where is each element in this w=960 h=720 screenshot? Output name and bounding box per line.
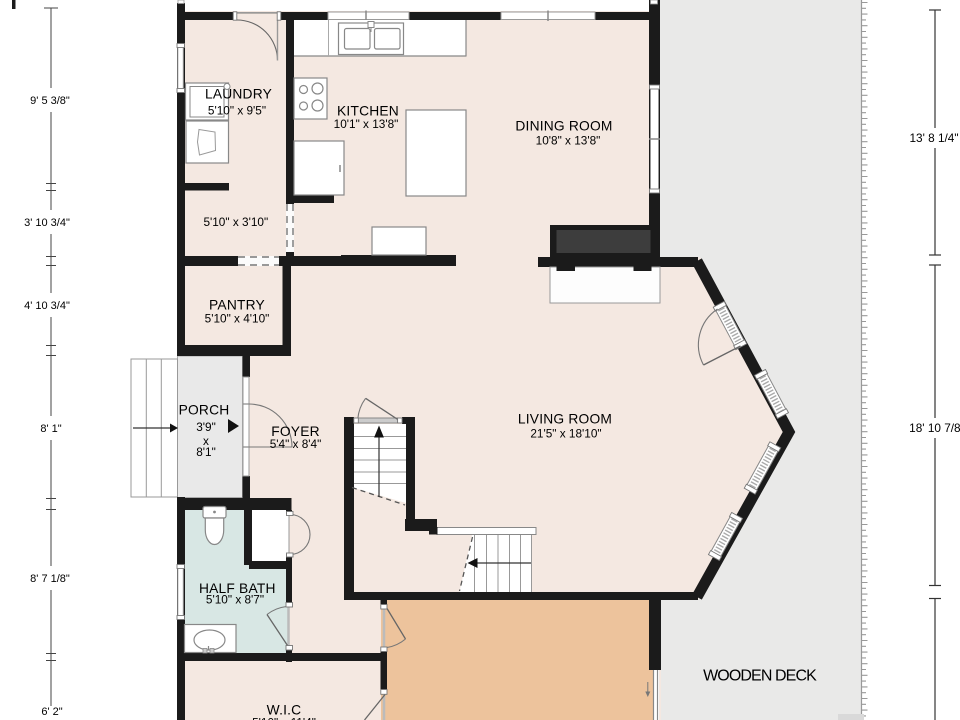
svg-text:5'10" x 9'5": 5'10" x 9'5"	[208, 104, 266, 118]
svg-text:4' 10 3/4": 4' 10 3/4"	[24, 300, 70, 312]
svg-text:5'10" x 4'10": 5'10" x 4'10"	[205, 312, 270, 326]
svg-text:LIVING ROOM: LIVING ROOM	[518, 412, 612, 427]
svg-text:5'10" x 8'7": 5'10" x 8'7"	[206, 593, 264, 607]
svg-text:9' 5 3/8": 9' 5 3/8"	[30, 95, 70, 107]
svg-text:3'9": 3'9"	[196, 420, 216, 434]
svg-text:8' 1": 8' 1"	[40, 423, 61, 435]
svg-text:5'10" x 3'10": 5'10" x 3'10"	[203, 215, 268, 229]
svg-text:WOODEN DECK: WOODEN DECK	[703, 668, 817, 685]
svg-text:6' 2": 6' 2"	[41, 706, 62, 718]
svg-text:LAUNDRY: LAUNDRY	[205, 87, 272, 102]
svg-text:10'1" x 13'8": 10'1" x 13'8"	[334, 117, 399, 131]
svg-text:8'1": 8'1"	[196, 445, 216, 459]
svg-text:21'5" x 18'10": 21'5" x 18'10"	[530, 426, 601, 440]
svg-text:PANTRY: PANTRY	[209, 298, 265, 313]
svg-text:8' 7 1/8": 8' 7 1/8"	[30, 573, 70, 585]
svg-text:DINING ROOM: DINING ROOM	[515, 119, 612, 134]
svg-text:3' 10 3/4": 3' 10 3/4"	[24, 217, 70, 229]
svg-text:PORCH: PORCH	[179, 403, 230, 418]
svg-text:5'4" x 8'4": 5'4" x 8'4"	[270, 437, 322, 451]
svg-text:13' 8 1/4": 13' 8 1/4"	[909, 131, 958, 145]
svg-text:18' 10 7/8": 18' 10 7/8"	[909, 421, 960, 435]
svg-text:10'8" x 13'8": 10'8" x 13'8"	[536, 134, 601, 148]
svg-text:5'10" x 11'4": 5'10" x 11'4"	[252, 716, 316, 720]
